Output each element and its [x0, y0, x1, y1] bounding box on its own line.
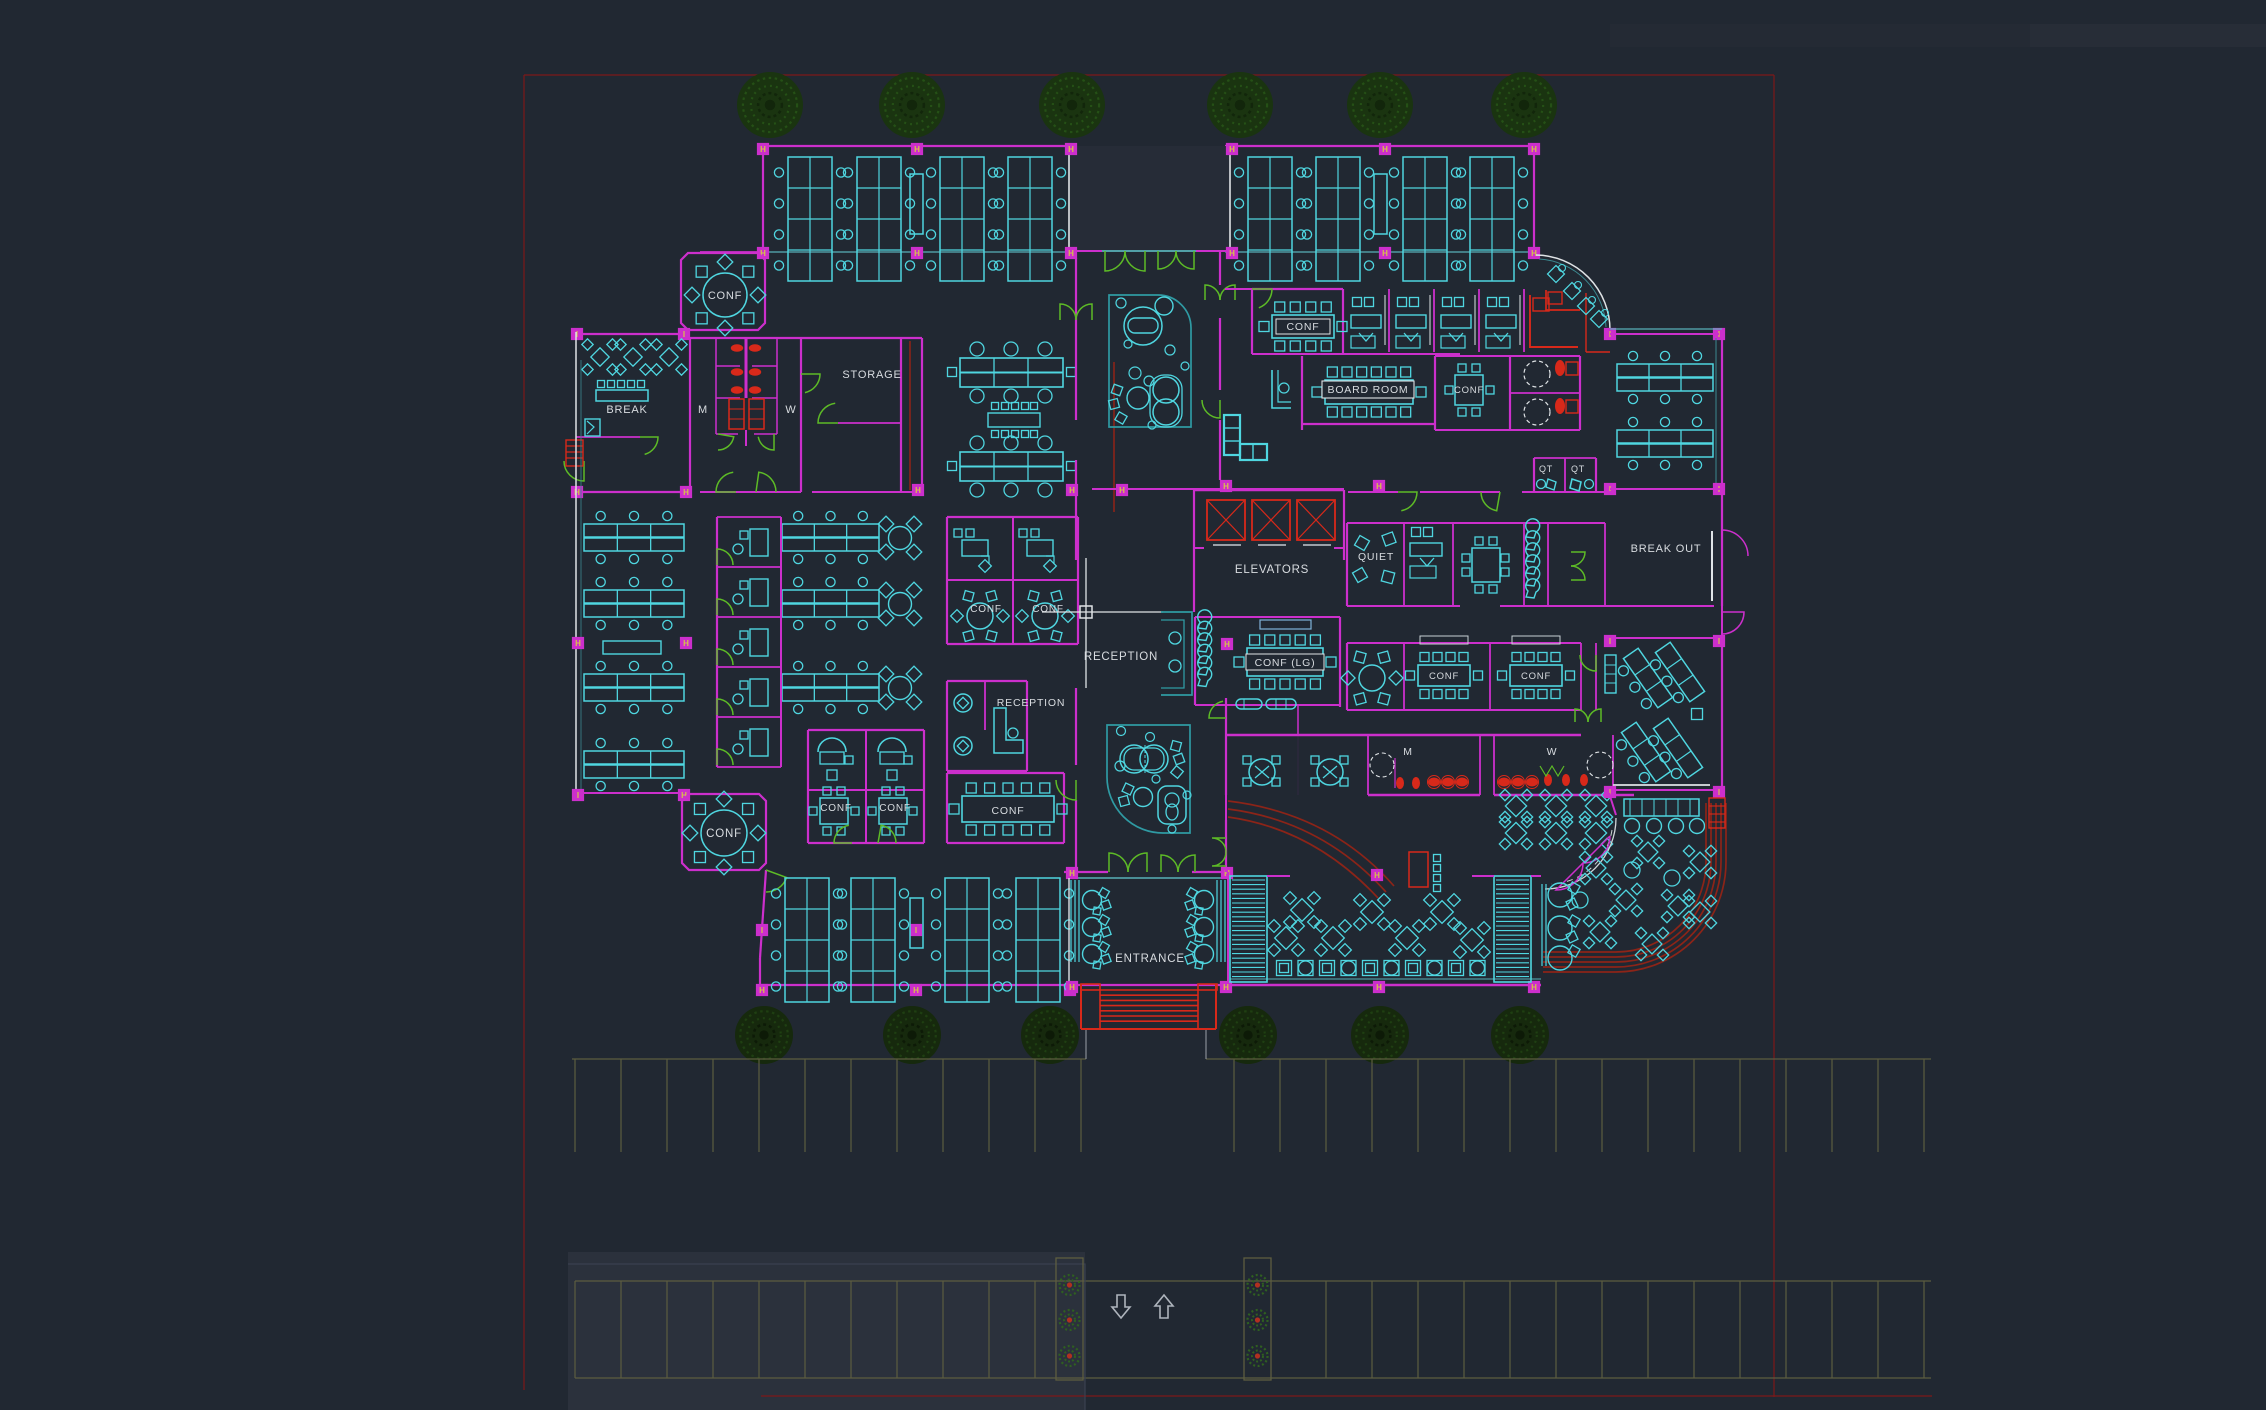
svg-text:H: H: [1531, 983, 1537, 992]
svg-text:H: H: [1382, 145, 1388, 154]
svg-text:I: I: [1609, 637, 1611, 646]
svg-text:W: W: [1547, 746, 1558, 758]
svg-text:I: I: [915, 926, 917, 935]
svg-text:H: H: [683, 488, 689, 497]
svg-text:H: H: [1382, 249, 1388, 258]
svg-text:W: W: [785, 404, 796, 416]
svg-text:H: H: [1224, 640, 1230, 649]
svg-text:H: H: [1119, 486, 1125, 495]
svg-text:H: H: [1069, 983, 1075, 992]
svg-text:BREAK: BREAK: [606, 404, 647, 416]
svg-text:CONF: CONF: [1454, 385, 1484, 396]
svg-text:H: H: [683, 639, 689, 648]
svg-text:CONF: CONF: [1521, 671, 1551, 682]
svg-text:H: H: [1069, 486, 1075, 495]
svg-text:I: I: [1718, 637, 1720, 646]
svg-text:H: H: [914, 249, 920, 258]
svg-text:I: I: [761, 926, 763, 935]
svg-text:H: H: [913, 986, 919, 995]
svg-text:CONF: CONF: [1429, 671, 1459, 682]
svg-text:H: H: [1069, 869, 1075, 878]
svg-text:H: H: [914, 145, 920, 154]
svg-text:H: H: [1374, 871, 1380, 880]
svg-text:I: I: [577, 791, 579, 800]
svg-text:H: H: [1068, 249, 1074, 258]
svg-text:H: H: [759, 986, 765, 995]
svg-text:QUIET: QUIET: [1358, 551, 1394, 563]
svg-text:CONF: CONF: [1287, 321, 1320, 333]
svg-text:H: H: [574, 488, 580, 497]
svg-text:QT: QT: [1571, 464, 1585, 474]
svg-text:H: H: [915, 486, 921, 495]
svg-text:H: H: [1376, 482, 1382, 491]
svg-text:ELEVATORS: ELEVATORS: [1235, 564, 1309, 576]
svg-text:CONF: CONF: [992, 805, 1025, 817]
svg-text:CONF: CONF: [879, 803, 911, 814]
svg-text:H: H: [1229, 145, 1235, 154]
svg-text:I: I: [683, 330, 685, 339]
svg-text:CONF: CONF: [706, 828, 742, 840]
svg-text:CONF: CONF: [1032, 604, 1064, 615]
svg-text:QT: QT: [1539, 464, 1553, 474]
svg-text:M: M: [1403, 746, 1413, 758]
svg-text:CONF: CONF: [708, 290, 742, 302]
svg-text:H: H: [1229, 249, 1235, 258]
svg-text:ENTRANCE: ENTRANCE: [1115, 953, 1185, 965]
svg-text:H: H: [1223, 482, 1229, 491]
svg-text:STORAGE: STORAGE: [842, 369, 901, 381]
svg-text:I: I: [1718, 788, 1720, 797]
svg-text:H: H: [1376, 983, 1382, 992]
svg-text:H: H: [1531, 145, 1537, 154]
svg-text:M: M: [698, 404, 708, 416]
svg-text:RECEPTION: RECEPTION: [997, 697, 1065, 709]
svg-text:H: H: [575, 639, 581, 648]
svg-text:CONF: CONF: [820, 803, 852, 814]
svg-text:CONF (LG): CONF (LG): [1255, 657, 1316, 669]
svg-text:H: H: [760, 145, 766, 154]
svg-text:BOARD ROOM: BOARD ROOM: [1328, 384, 1409, 396]
svg-text:BREAK OUT: BREAK OUT: [1631, 543, 1702, 555]
svg-text:CONF: CONF: [970, 604, 1002, 615]
svg-text:H: H: [1531, 249, 1537, 258]
svg-text:RECEPTION: RECEPTION: [1084, 651, 1158, 663]
svg-text:H: H: [1223, 983, 1229, 992]
svg-text:H: H: [1068, 145, 1074, 154]
